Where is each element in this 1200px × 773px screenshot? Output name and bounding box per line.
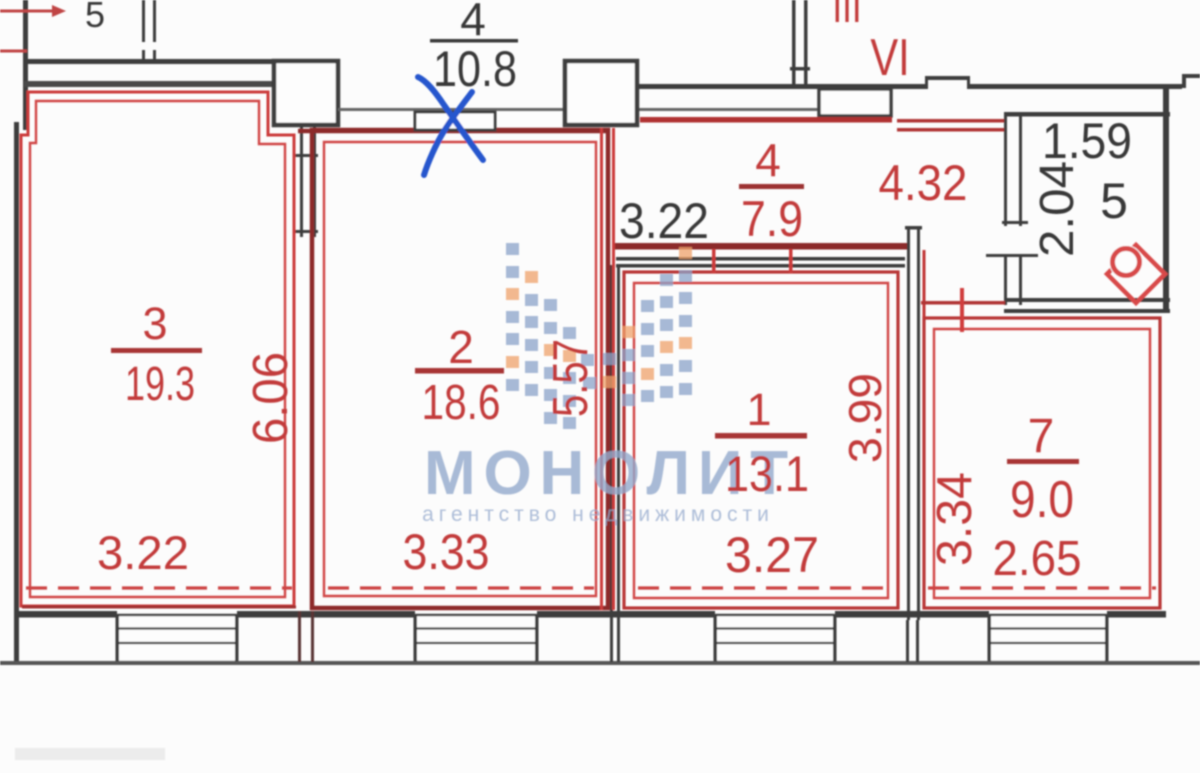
svg-text:3.22: 3.22 (619, 193, 709, 249)
svg-text:3.99: 3.99 (839, 373, 891, 463)
svg-text:3.27: 3.27 (725, 527, 819, 583)
svg-text:III: III (832, 0, 861, 32)
svg-text:агентство недвижимости: агентство недвижимости (422, 503, 774, 526)
svg-text:5: 5 (85, 0, 105, 35)
svg-text:9.0: 9.0 (1010, 471, 1074, 529)
svg-text:2: 2 (448, 321, 474, 373)
svg-text:3.22: 3.22 (97, 526, 189, 579)
svg-text:7: 7 (1028, 410, 1055, 463)
svg-text:6.06: 6.06 (244, 352, 298, 444)
svg-text:4.32: 4.32 (879, 155, 968, 211)
svg-text:18.6: 18.6 (422, 376, 501, 430)
svg-text:19.3: 19.3 (125, 358, 195, 411)
svg-text:13.1: 13.1 (725, 446, 809, 502)
svg-text:2.04: 2.04 (1031, 161, 1084, 257)
svg-text:VI: VI (870, 28, 909, 87)
svg-text:1.59: 1.59 (1042, 113, 1132, 169)
svg-text:4: 4 (755, 134, 781, 186)
svg-text:2.65: 2.65 (993, 532, 1082, 586)
svg-text:7.9: 7.9 (741, 191, 803, 247)
svg-text:3.33: 3.33 (403, 524, 490, 580)
svg-text:10.8: 10.8 (433, 41, 517, 97)
svg-text:5: 5 (1100, 173, 1128, 229)
svg-text:3.34: 3.34 (928, 472, 982, 566)
svg-text:5.57: 5.57 (544, 339, 598, 417)
svg-text:3: 3 (142, 298, 167, 349)
svg-text:1: 1 (746, 384, 771, 435)
svg-text:4: 4 (460, 0, 486, 45)
